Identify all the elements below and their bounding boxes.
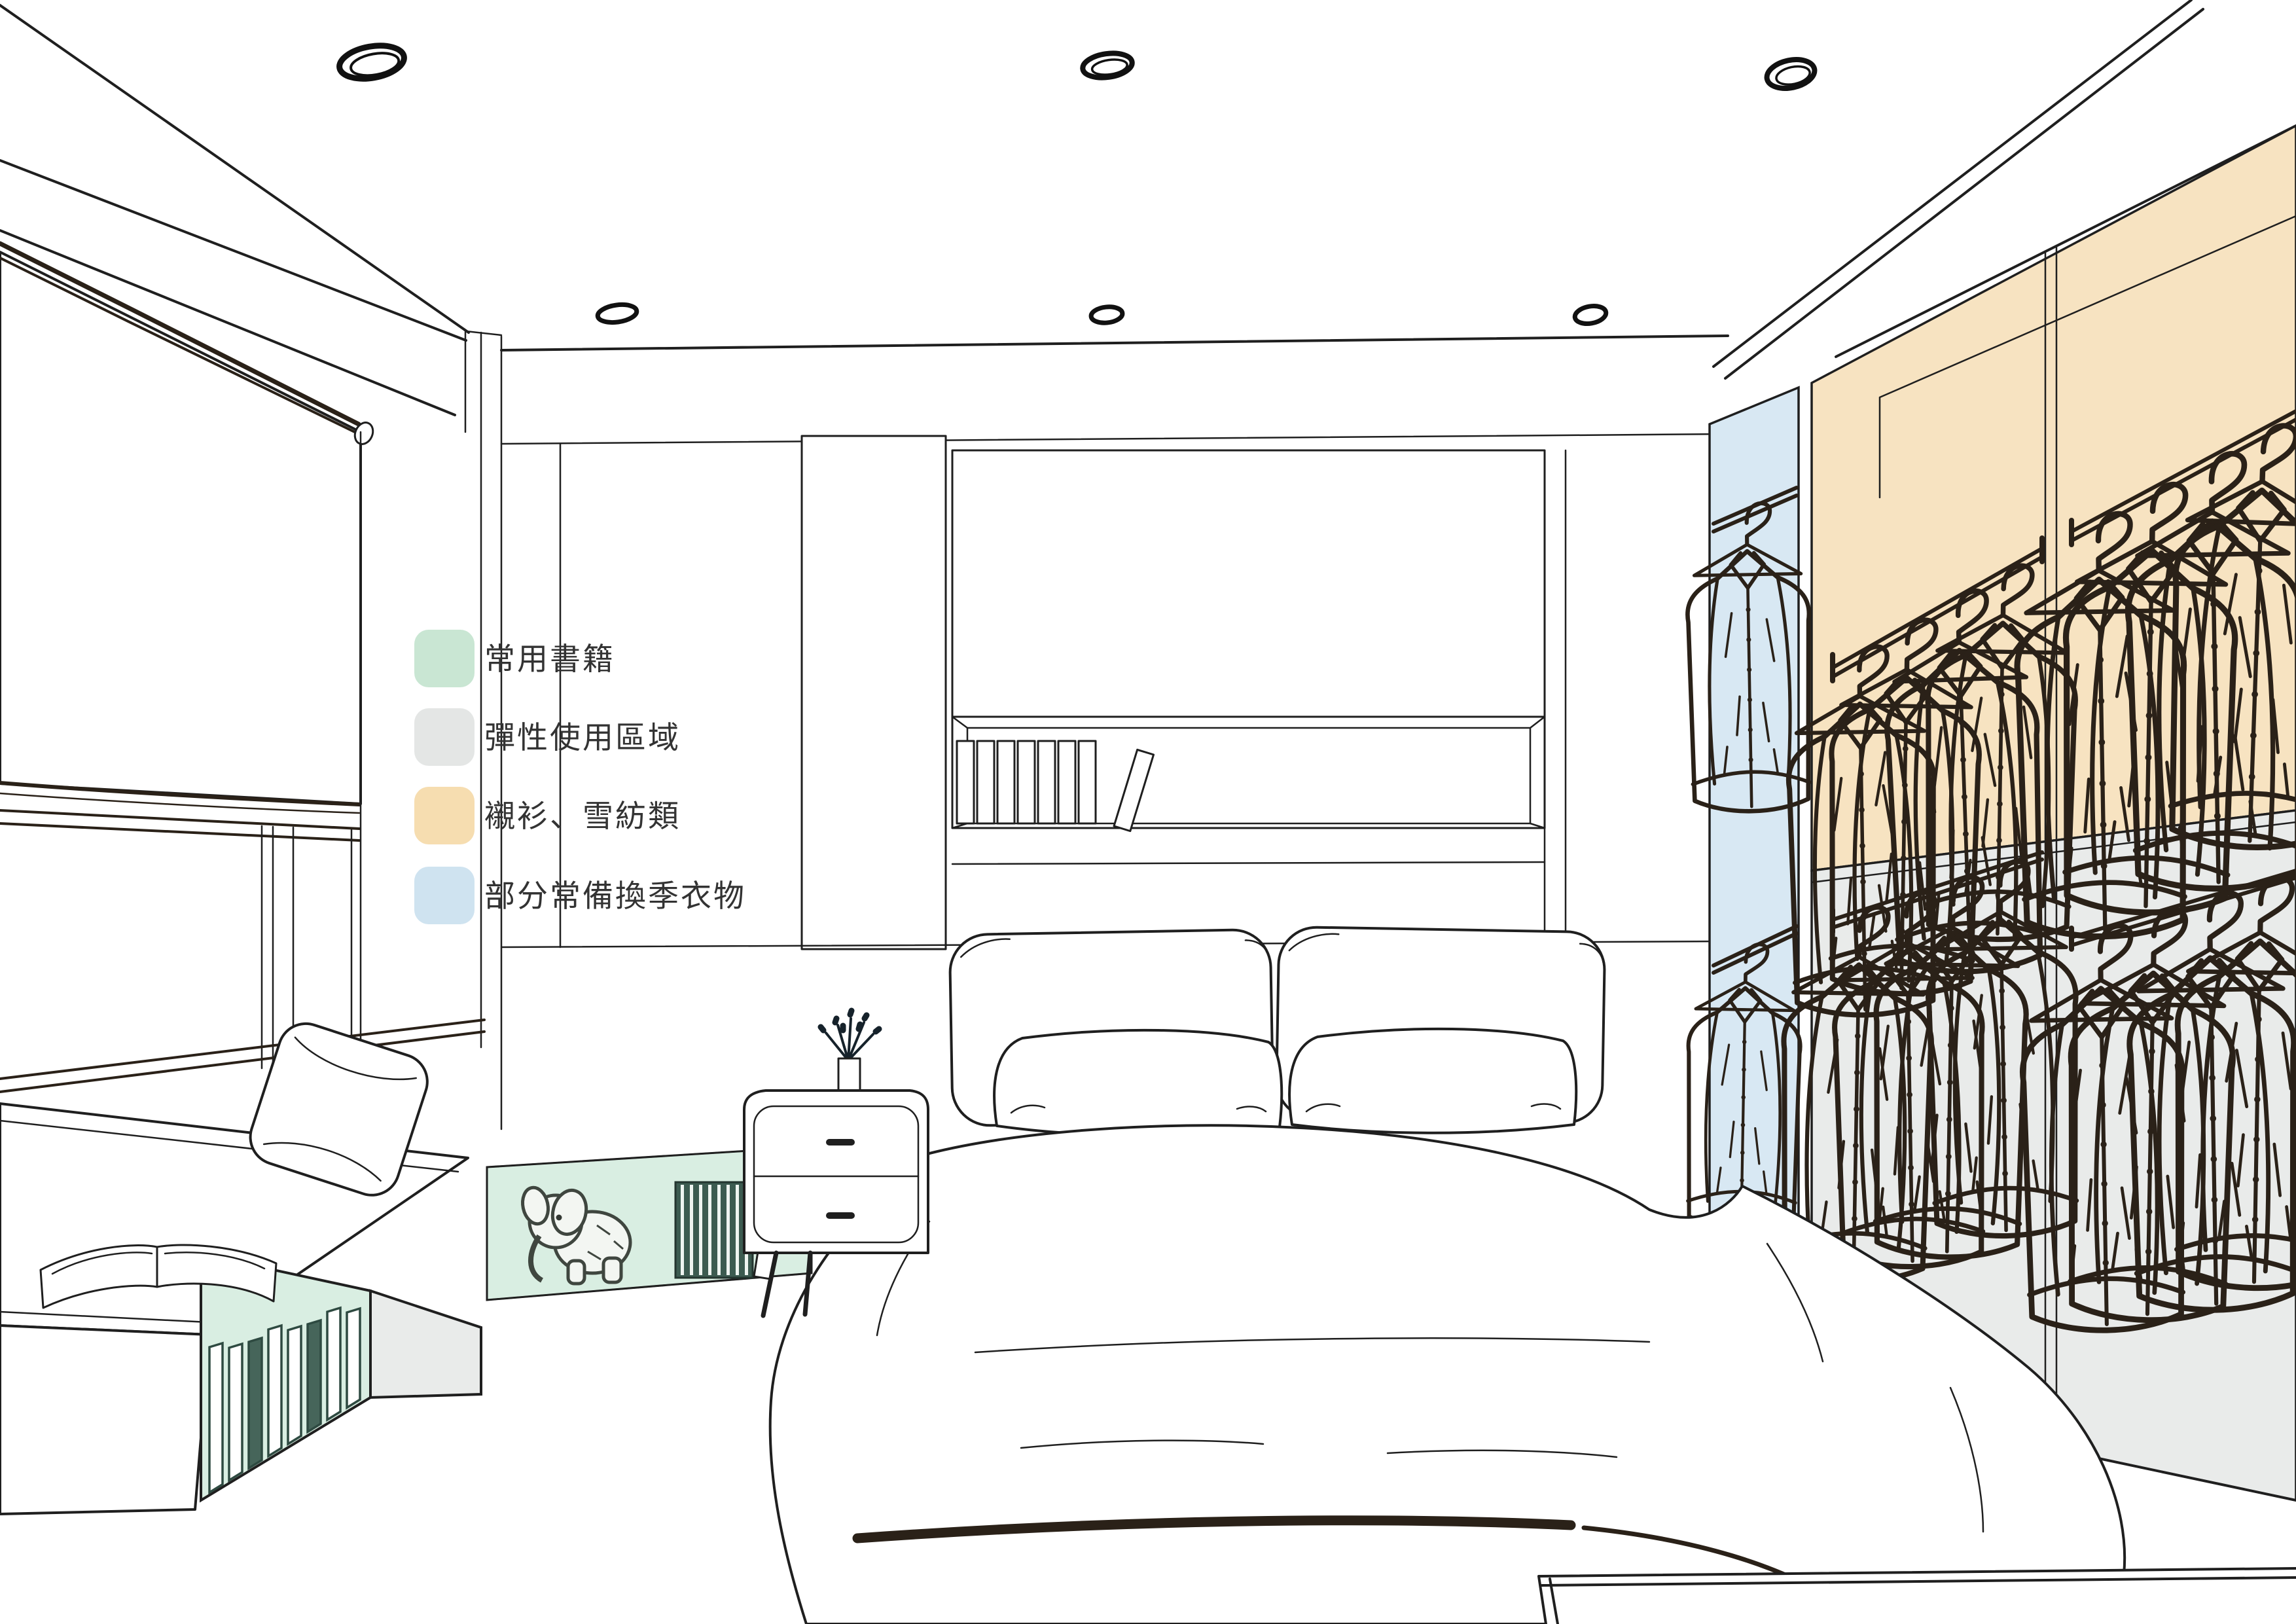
book-spine bbox=[1079, 741, 1096, 823]
ceiling-lights bbox=[337, 41, 1818, 326]
bench-front-panel bbox=[0, 1326, 209, 1514]
bedroom-rendering: 常用書籍 彈性使用區域 襯衫、雪紡類 部分常備換季衣物 bbox=[0, 0, 2296, 1624]
nightstand-body bbox=[744, 1091, 928, 1253]
drawer-handle bbox=[826, 1212, 855, 1219]
legend-label-seasonal: 部分常備換季衣物 bbox=[484, 878, 746, 914]
recessed-light-icon bbox=[1090, 306, 1123, 325]
foot-bench-top bbox=[1539, 1568, 2296, 1624]
legend: 常用書籍 彈性使用區域 襯衫、雪紡類 部分常備換季衣物 bbox=[414, 630, 746, 924]
book-spine-stripe bbox=[726, 1185, 730, 1275]
legend-label-shirts: 襯衫、雪紡類 bbox=[484, 799, 681, 835]
book-spine bbox=[308, 1320, 321, 1432]
soffit-end-face bbox=[465, 331, 501, 432]
bench-open-compartment bbox=[370, 1291, 481, 1398]
panel-seam-right bbox=[1545, 450, 1566, 947]
book-stack bbox=[675, 1182, 753, 1278]
book-spine-stripe bbox=[681, 1185, 684, 1275]
book-spine bbox=[288, 1326, 301, 1444]
book-spine-stripe bbox=[699, 1185, 702, 1275]
book-spine bbox=[1058, 741, 1075, 823]
pillow-right bbox=[1289, 1029, 1576, 1133]
recessed-light-icon bbox=[1764, 56, 1817, 92]
book-spine bbox=[957, 741, 974, 823]
flower-vase bbox=[821, 1011, 879, 1103]
legend-swatch-flex bbox=[414, 708, 475, 766]
flowers-icon bbox=[821, 1011, 879, 1060]
book-spine bbox=[209, 1343, 223, 1492]
window-wall bbox=[0, 244, 484, 1092]
legend-swatch-seasonal bbox=[414, 867, 475, 924]
legend-label-books: 常用書籍 bbox=[484, 641, 615, 677]
book-spine bbox=[347, 1308, 360, 1408]
book-spine bbox=[997, 741, 1014, 823]
book-spine bbox=[327, 1308, 340, 1420]
book-spine-stripe bbox=[690, 1185, 693, 1275]
recessed-light-icon bbox=[596, 302, 637, 325]
book-spine bbox=[229, 1344, 242, 1481]
book-spine bbox=[268, 1326, 281, 1456]
legend-swatch-shirts bbox=[414, 787, 475, 844]
book-spine-stripe bbox=[736, 1185, 739, 1275]
legend-swatch-books bbox=[414, 630, 475, 687]
book-spine bbox=[249, 1338, 262, 1468]
book-spine bbox=[977, 741, 994, 823]
bedroom-sketch-canvas: 常用書籍 彈性使用區域 襯衫、雪紡類 部分常備換季衣物 bbox=[0, 0, 2296, 1624]
wall-pillar bbox=[802, 436, 946, 949]
window-sill bbox=[0, 810, 359, 840]
pillow-left bbox=[994, 1030, 1282, 1136]
wall-panel-top-line bbox=[501, 434, 1728, 444]
recessed-light-icon bbox=[1081, 50, 1134, 81]
foot-bench bbox=[1539, 1568, 2296, 1624]
recessed-light-icon bbox=[337, 41, 407, 84]
legend-label-flex: 彈性使用區域 bbox=[484, 720, 681, 756]
recessed-light-icon bbox=[1573, 304, 1607, 326]
drawer-handle bbox=[826, 1139, 855, 1146]
niche-bottom-band bbox=[952, 862, 1545, 864]
book-spine-stripe bbox=[708, 1185, 711, 1275]
back-wall-top-edge bbox=[501, 336, 1728, 350]
book-spine-stripe bbox=[717, 1185, 721, 1275]
window-bench bbox=[0, 1017, 481, 1514]
book-spine bbox=[1038, 741, 1055, 823]
ceiling-soffit-edge bbox=[0, 5, 469, 333]
book-spine bbox=[1018, 741, 1035, 823]
bench-bookshelf bbox=[201, 1254, 370, 1500]
headboard-panel bbox=[952, 450, 1545, 717]
